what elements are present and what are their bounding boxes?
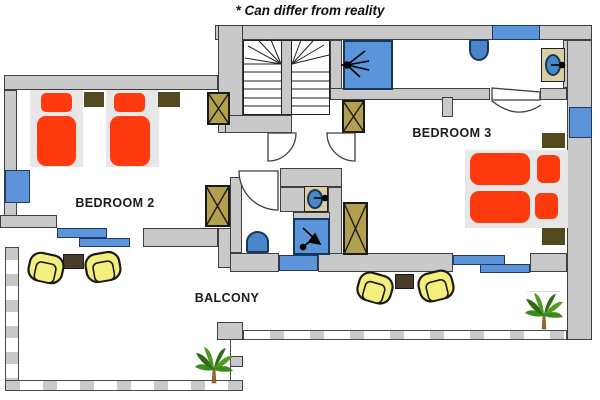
staircase-icon — [244, 40, 329, 106]
room-label-bedroom2: BEDROOM 2 — [58, 196, 172, 210]
wardrobe-x-icon — [206, 93, 367, 254]
room-label-bedroom3: BEDROOM 3 — [404, 126, 500, 140]
armchair — [84, 250, 122, 283]
disclaimer-note: * Can differ from reality — [220, 3, 400, 18]
armchair — [355, 270, 395, 306]
floor-plan: * Can differ from reality BEDROOM 2 BEDR… — [0, 0, 600, 400]
room-label-balcony: BALCONY — [188, 291, 266, 305]
palm-plant-icon — [525, 293, 563, 329]
palm-plant-icon — [195, 347, 233, 383]
armchair — [416, 268, 456, 303]
armchair — [26, 251, 65, 285]
door-swing-icon — [239, 88, 541, 210]
